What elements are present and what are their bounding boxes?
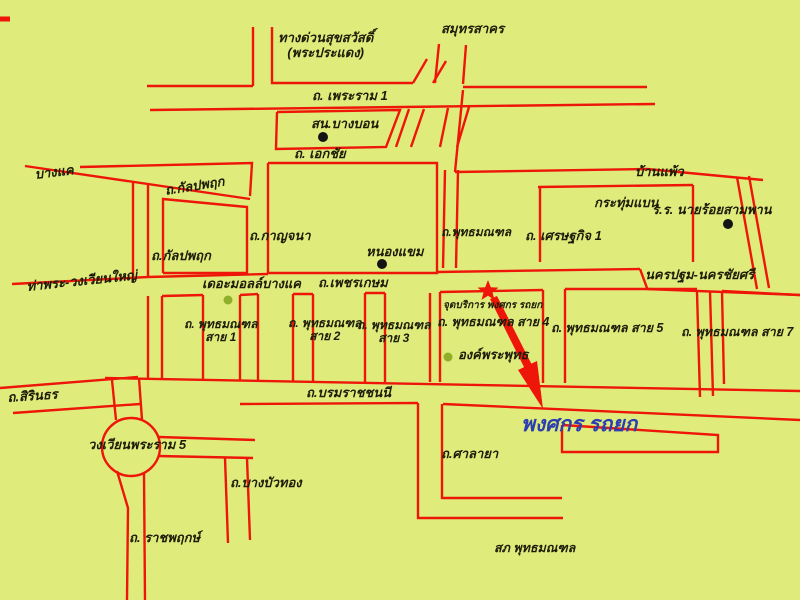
road-line — [722, 291, 724, 384]
road-line — [112, 380, 116, 420]
road-line — [148, 274, 268, 277]
road-line — [437, 269, 640, 272]
road-line — [25, 166, 250, 199]
road-network — [0, 0, 800, 600]
road-line — [162, 295, 203, 296]
road-line — [159, 437, 255, 440]
destination-arrow-icon — [490, 296, 533, 371]
road-line — [117, 471, 128, 600]
poi-military-academy-dot — [723, 219, 733, 229]
road-line — [272, 27, 413, 83]
road-line — [13, 404, 140, 413]
road-line — [268, 163, 437, 273]
poi-nong-khaem-dot — [377, 259, 387, 269]
road-line — [418, 403, 563, 518]
road-line — [163, 199, 247, 273]
road-line — [443, 404, 800, 420]
road-line — [12, 277, 148, 284]
road-line — [276, 110, 400, 149]
road-line — [538, 185, 693, 187]
road-line — [413, 59, 427, 83]
road-line — [240, 403, 418, 404]
road-line — [456, 170, 458, 268]
road-line — [0, 377, 138, 388]
road-line — [144, 473, 145, 600]
map-canvas: ทางด่วนสุขสวัสดิ์ (พระประแดง)สมุทรสาครถ.… — [0, 0, 800, 600]
road-line — [562, 425, 718, 452]
road-line — [80, 163, 252, 196]
poi-bang-bon-police-dot — [318, 132, 328, 142]
road-line — [737, 177, 757, 289]
poi-the-mall-dot — [224, 296, 233, 305]
road-line — [710, 291, 713, 396]
roundabout-circle — [102, 418, 160, 476]
road-line — [442, 404, 562, 498]
road-line — [749, 176, 769, 288]
poi-buddha-monument-dot — [444, 353, 453, 362]
road-line — [440, 108, 448, 147]
road-line — [105, 378, 800, 391]
road-line — [443, 170, 445, 268]
road-line — [150, 104, 655, 110]
road-line — [158, 456, 253, 458]
road-line — [139, 378, 142, 420]
road-line — [463, 45, 466, 84]
road-line — [455, 169, 763, 180]
road-line — [225, 458, 228, 543]
road-line — [240, 294, 258, 295]
road-line — [697, 292, 700, 397]
road-line — [247, 458, 250, 540]
road-line — [411, 109, 424, 147]
road-line — [640, 269, 647, 288]
